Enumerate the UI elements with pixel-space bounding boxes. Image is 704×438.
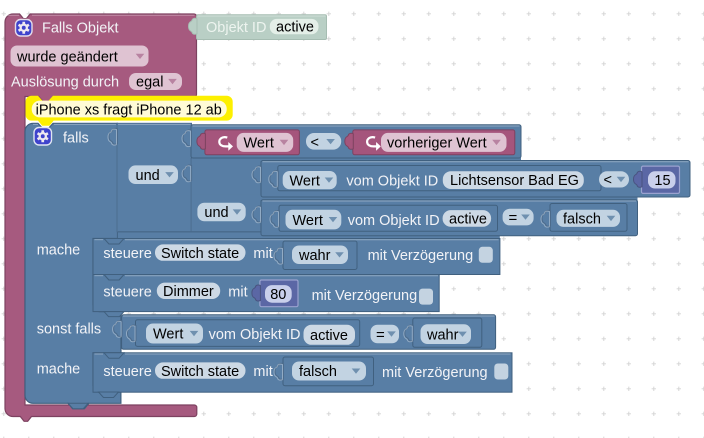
svg-text:Wert: Wert <box>153 327 183 343</box>
svg-text:Objekt ID: Objekt ID <box>206 20 266 36</box>
svg-text:wahr: wahr <box>426 327 459 343</box>
svg-text:steuere: steuere <box>103 246 151 262</box>
svg-text:=: = <box>376 327 385 344</box>
svg-text:=: = <box>509 210 518 227</box>
svg-text:<: < <box>604 172 612 188</box>
svg-text:vom Objekt ID: vom Objekt ID <box>348 213 440 229</box>
svg-text:Switch state: Switch state <box>161 364 239 380</box>
svg-text:active: active <box>310 328 348 344</box>
svg-text:mit Verzögerung: mit Verzögerung <box>368 248 474 264</box>
svg-text:Wert: Wert <box>290 173 320 189</box>
svg-text:und: und <box>136 168 160 184</box>
svg-text:sonst falls: sonst falls <box>37 322 101 338</box>
svg-text:mit: mit <box>253 364 272 380</box>
svg-text:vorheriger Wert: vorheriger Wert <box>387 136 487 152</box>
svg-text:falsch: falsch <box>563 212 601 228</box>
svg-text:mit Verzögerung: mit Verzögerung <box>382 365 488 381</box>
svg-text:Wert: Wert <box>293 213 323 229</box>
svg-text:vom Objekt ID: vom Objekt ID <box>209 327 301 343</box>
svg-text:15: 15 <box>654 173 670 189</box>
svg-text:egal: egal <box>136 75 163 91</box>
svg-text:steuere: steuere <box>103 364 151 380</box>
svg-text:Lichtsensor Bad EG: Lichtsensor Bad EG <box>450 173 579 189</box>
svg-text:wurde geändert: wurde geändert <box>16 50 118 66</box>
svg-text:iPhone xs fragt iPhone 12 ab: iPhone xs fragt iPhone 12 ab <box>36 102 222 118</box>
svg-text:mit: mit <box>253 246 272 262</box>
svg-text:mache: mache <box>37 243 81 259</box>
svg-text:vom Objekt ID: vom Objekt ID <box>346 174 438 190</box>
svg-text:active: active <box>449 212 487 228</box>
svg-text:80: 80 <box>270 287 286 303</box>
svg-text:active: active <box>276 20 314 36</box>
svg-text:Wert: Wert <box>244 136 274 152</box>
svg-text:wahr: wahr <box>298 248 331 264</box>
svg-text:und: und <box>204 205 228 221</box>
svg-text:mit: mit <box>228 285 247 301</box>
svg-text:falls: falls <box>63 131 89 147</box>
svg-text:mache: mache <box>37 362 81 378</box>
svg-text:<: < <box>311 135 319 151</box>
svg-text:Dimmer: Dimmer <box>163 284 214 300</box>
svg-text:falsch: falsch <box>299 364 337 380</box>
svg-text:steuere: steuere <box>103 285 151 301</box>
svg-text:Falls Objekt: Falls Objekt <box>42 21 119 37</box>
svg-text:mit Verzögerung: mit Verzögerung <box>312 288 418 304</box>
svg-text:Switch state: Switch state <box>161 246 239 262</box>
svg-text:Auslösung durch: Auslösung durch <box>11 75 119 91</box>
